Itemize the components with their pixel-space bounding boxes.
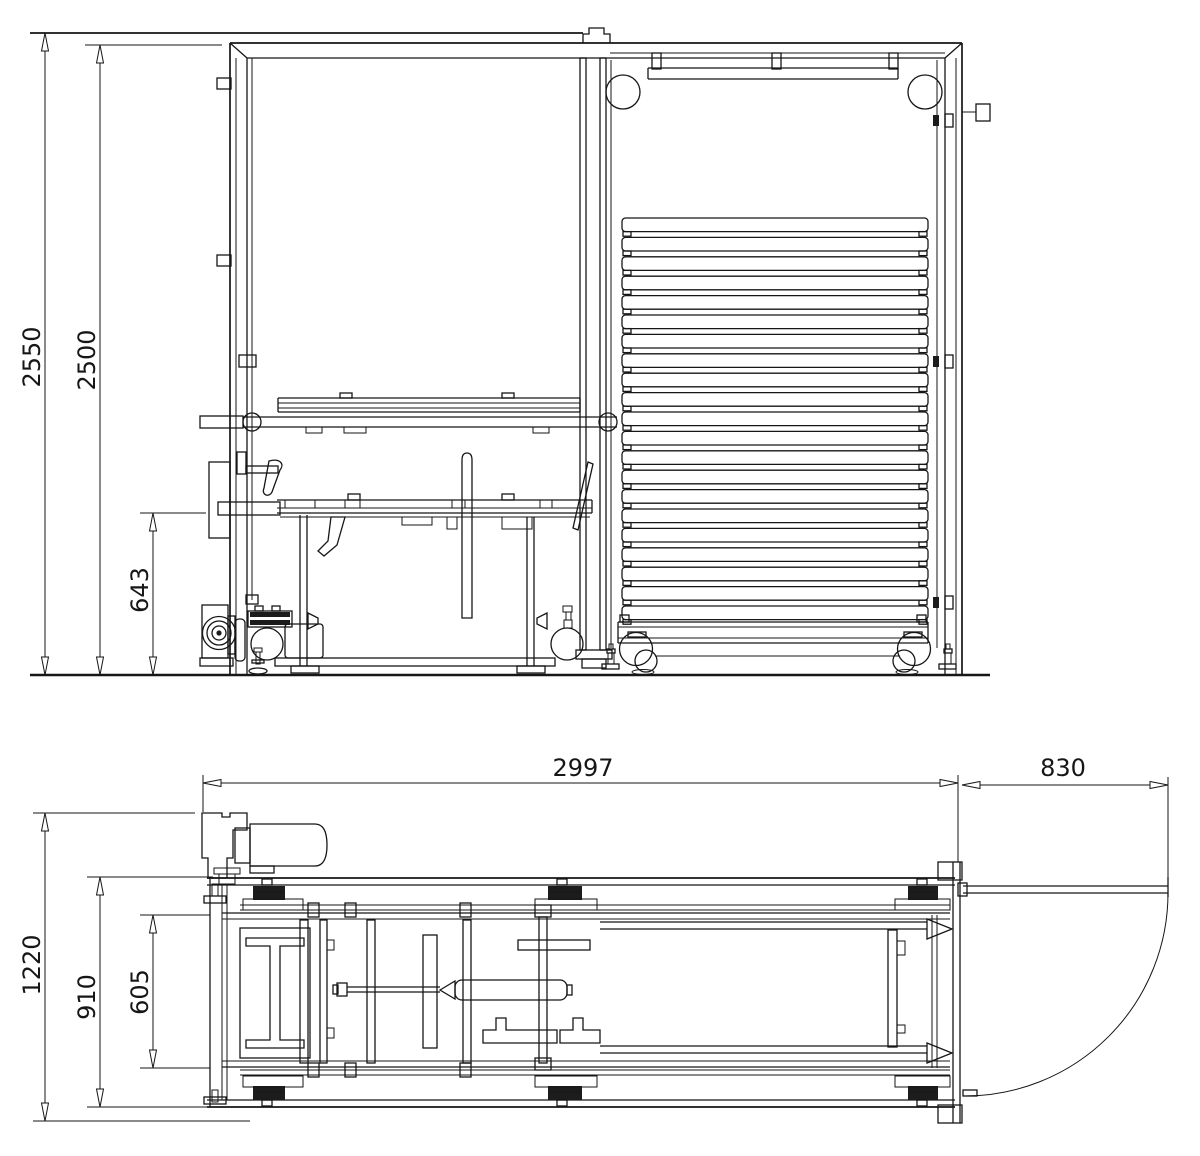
dim-label-overall-depth: 1220 bbox=[18, 934, 46, 995]
technical-drawing: 2550 2500 643 bbox=[0, 0, 1200, 1156]
dim-label-door-swing: 830 bbox=[1040, 754, 1086, 782]
dim-label-table-height: 643 bbox=[126, 567, 154, 613]
technical-drawing-page: 2550 2500 643 bbox=[0, 0, 1200, 1156]
dim-label-carriage-width: 605 bbox=[126, 969, 154, 1015]
dim-label-overall-height: 2550 bbox=[18, 326, 46, 387]
dim-label-frame-height: 2500 bbox=[73, 329, 101, 390]
dim-label-frame-depth: 910 bbox=[73, 974, 101, 1020]
dim-label-overall-length: 2997 bbox=[552, 754, 613, 782]
